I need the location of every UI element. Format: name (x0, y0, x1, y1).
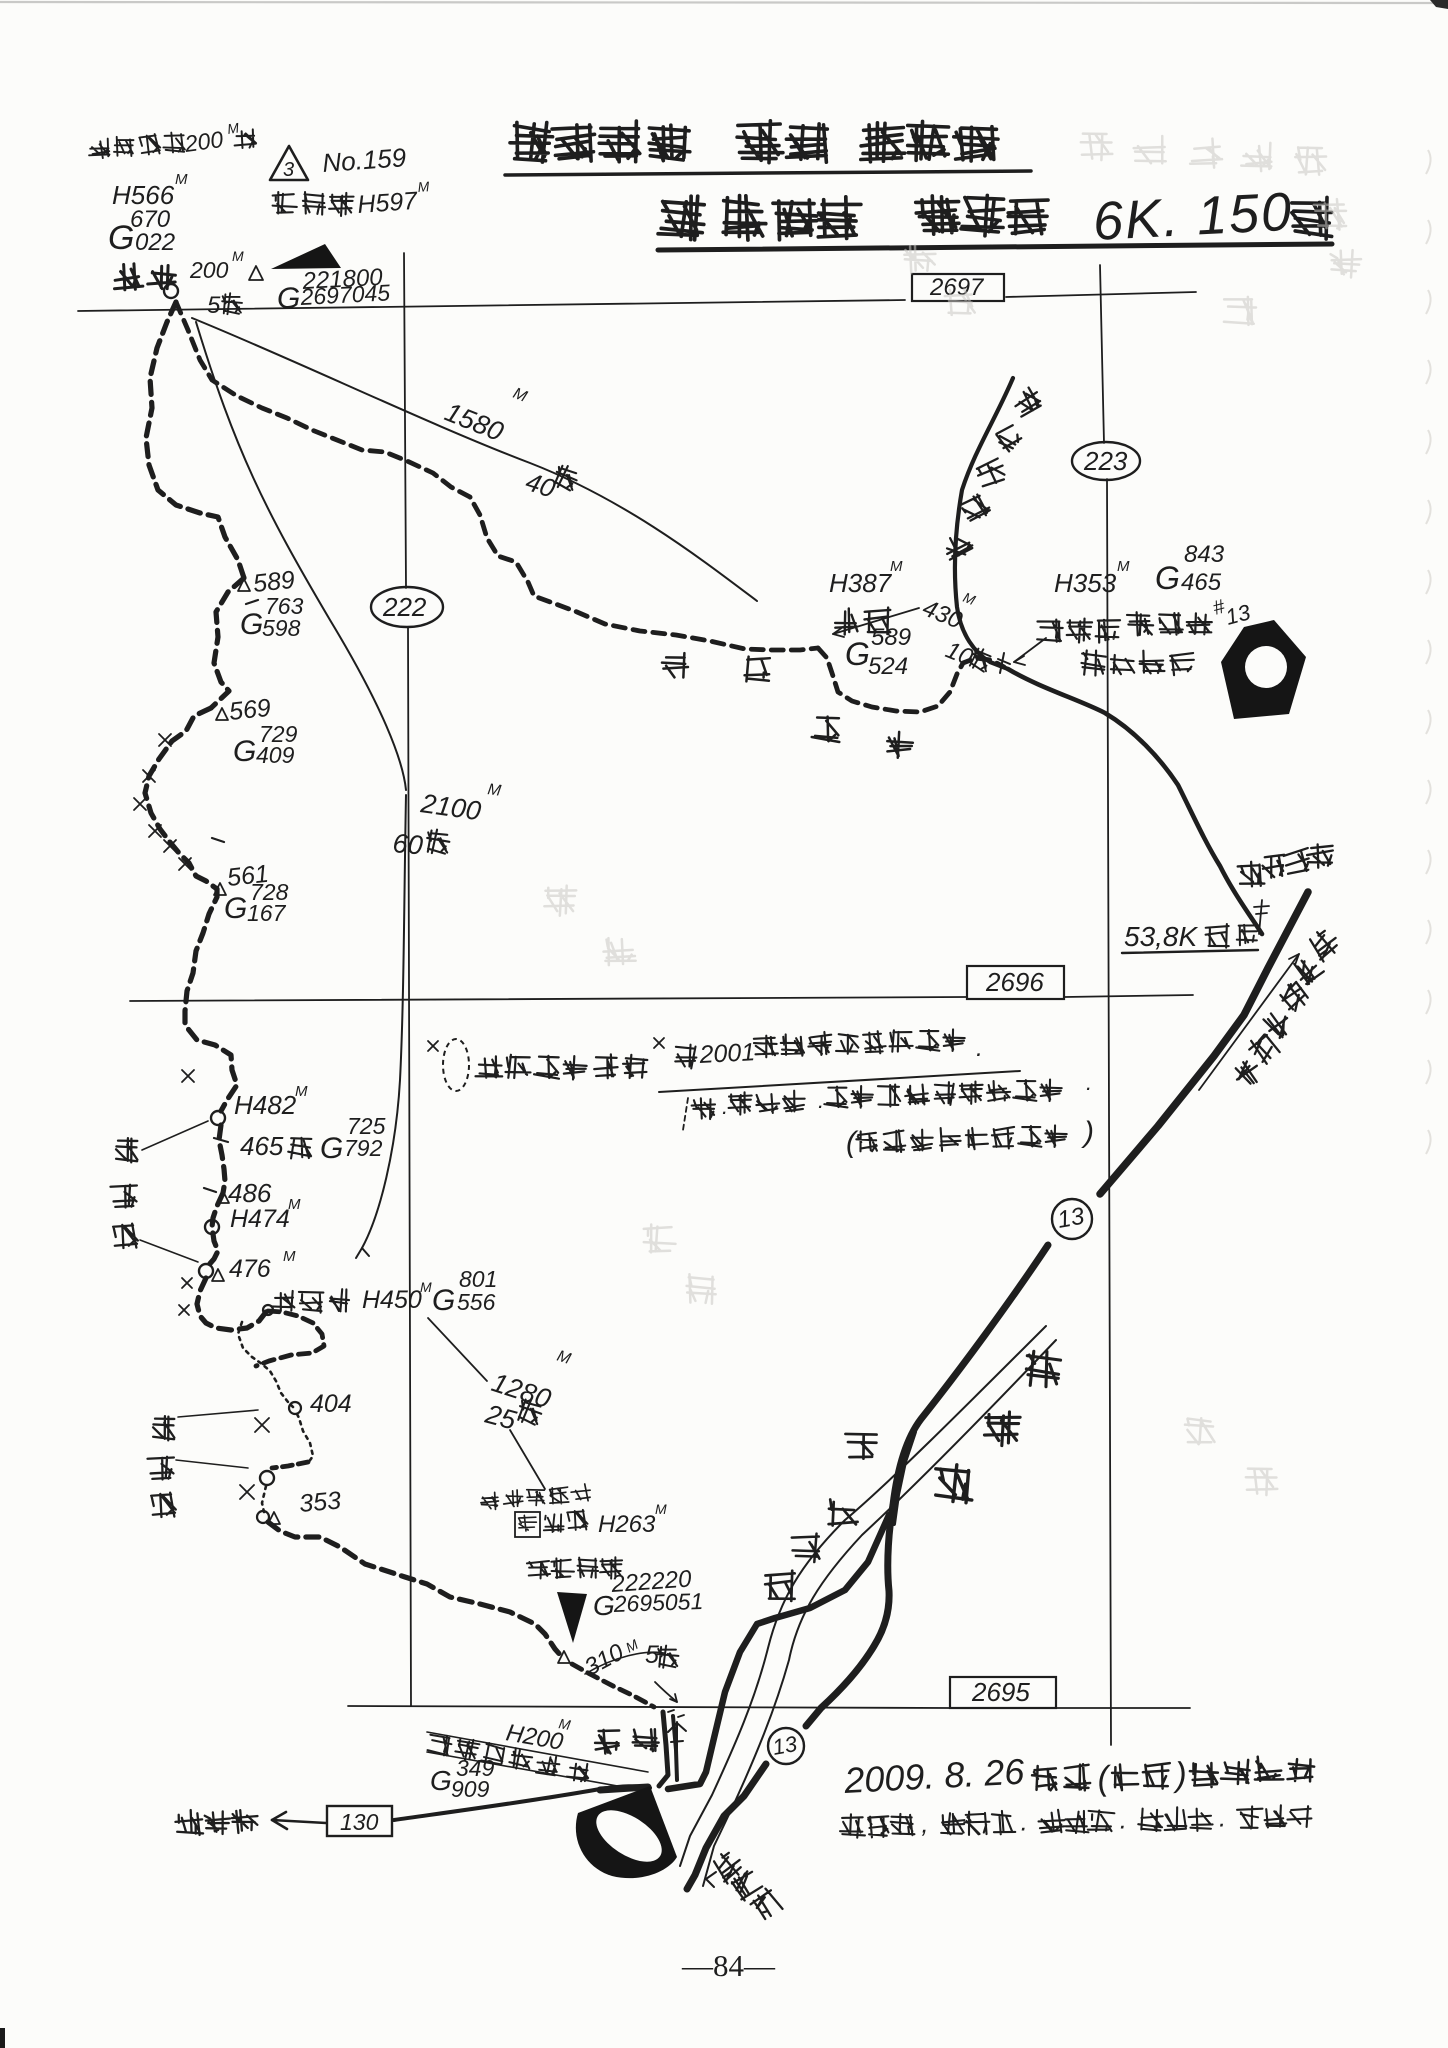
svg-text:G: G (233, 735, 256, 768)
svg-text:167: 167 (247, 900, 287, 926)
svg-text:2100: 2100 (418, 788, 483, 826)
svg-text:2697: 2697 (929, 274, 985, 301)
svg-text:M: M (295, 1083, 308, 1100)
svg-text:M: M (623, 1636, 641, 1656)
svg-text:53,8K: 53,8K (1124, 921, 1198, 952)
svg-text:M: M (655, 1501, 667, 1517)
svg-text:M: M (555, 1348, 574, 1368)
svg-text:G: G (224, 892, 247, 925)
svg-text:M: M (486, 781, 502, 800)
svg-text:2001: 2001 (698, 1038, 756, 1069)
svg-text:G: G (432, 1284, 455, 1317)
svg-text:G: G (320, 1132, 343, 1165)
svg-text:H482: H482 (234, 1090, 297, 1120)
svg-text:G: G (1155, 560, 1180, 596)
svg-text:M: M (511, 385, 530, 406)
svg-text:200: 200 (182, 126, 225, 157)
svg-text:598: 598 (262, 615, 301, 641)
svg-text:200: 200 (189, 257, 229, 283)
svg-text:No.159: No.159 (321, 142, 407, 178)
svg-text:2695: 2695 (971, 1677, 1030, 1707)
svg-text:M: M (557, 1715, 572, 1733)
svg-text:,: , (921, 1809, 928, 1839)
svg-text:60: 60 (391, 828, 424, 861)
svg-text:M: M (890, 558, 903, 575)
svg-text:5: 5 (207, 292, 221, 319)
svg-text:3: 3 (283, 159, 294, 181)
svg-text:2009. 8. 26: 2009. 8. 26 (842, 1751, 1026, 1801)
svg-text:M: M (175, 171, 188, 188)
svg-text:556: 556 (457, 1289, 496, 1315)
svg-text:(: ( (1096, 1759, 1113, 1798)
svg-text:465: 465 (240, 1131, 284, 1161)
svg-text:223: 223 (1083, 446, 1128, 476)
svg-text:.: . (1219, 1803, 1226, 1833)
svg-text:13: 13 (1055, 1203, 1087, 1234)
svg-text:G: G (845, 636, 870, 672)
svg-text:.: . (1086, 1070, 1092, 1095)
svg-text:H597: H597 (356, 187, 419, 219)
svg-text:): ) (1170, 1755, 1187, 1794)
svg-text:13: 13 (771, 1731, 800, 1760)
svg-text:353: 353 (298, 1486, 342, 1518)
svg-text:2696: 2696 (985, 967, 1044, 997)
svg-text:H200: H200 (504, 1719, 566, 1756)
svg-text:G: G (240, 608, 263, 641)
svg-text:13: 13 (1223, 599, 1254, 630)
svg-text:M: M (226, 119, 240, 137)
svg-text:465: 465 (1181, 569, 1222, 596)
svg-text:6K. 150: 6K. 150 (1091, 182, 1294, 252)
svg-text:476: 476 (229, 1255, 271, 1283)
svg-text:G: G (430, 1765, 452, 1796)
svg-text:.: . (976, 1034, 983, 1062)
svg-text:H353: H353 (1054, 568, 1117, 598)
svg-text:G: G (593, 1590, 615, 1621)
svg-text:022: 022 (135, 229, 175, 256)
svg-text:M: M (288, 1196, 301, 1213)
svg-text:486: 486 (228, 1178, 272, 1208)
svg-text:2697045: 2697045 (299, 279, 391, 310)
svg-text:M: M (1117, 558, 1130, 575)
svg-text:130: 130 (340, 1809, 379, 1835)
svg-text:524: 524 (868, 653, 908, 680)
svg-text:H387: H387 (829, 568, 893, 598)
svg-text:H474: H474 (230, 1205, 290, 1233)
svg-text:589: 589 (871, 624, 911, 651)
svg-text:M: M (420, 1279, 432, 1295)
svg-text:M: M (283, 1248, 296, 1265)
svg-text:M: M (961, 589, 978, 608)
svg-text:—84—: —84— (681, 1948, 776, 1983)
svg-text:5: 5 (645, 1641, 659, 1669)
svg-text:H450: H450 (362, 1286, 422, 1314)
svg-text:2695051: 2695051 (612, 1588, 703, 1617)
svg-text:792: 792 (344, 1135, 383, 1161)
svg-text:404: 404 (310, 1390, 352, 1418)
svg-text:.: . (722, 1094, 728, 1119)
svg-text:M: M (232, 248, 244, 264)
svg-text:909: 909 (451, 1776, 490, 1802)
svg-text:222: 222 (382, 592, 427, 622)
svg-text:H263: H263 (598, 1511, 656, 1538)
svg-text:.: . (818, 1088, 824, 1113)
svg-text:843: 843 (1184, 541, 1225, 568)
svg-text:M: M (417, 178, 430, 195)
svg-text:409: 409 (256, 742, 295, 768)
svg-text:): ) (1081, 1116, 1094, 1149)
svg-text:G: G (277, 282, 300, 315)
svg-text:.: . (1021, 1807, 1028, 1837)
svg-text:(: ( (846, 1126, 859, 1159)
svg-text:.: . (1120, 1805, 1127, 1835)
